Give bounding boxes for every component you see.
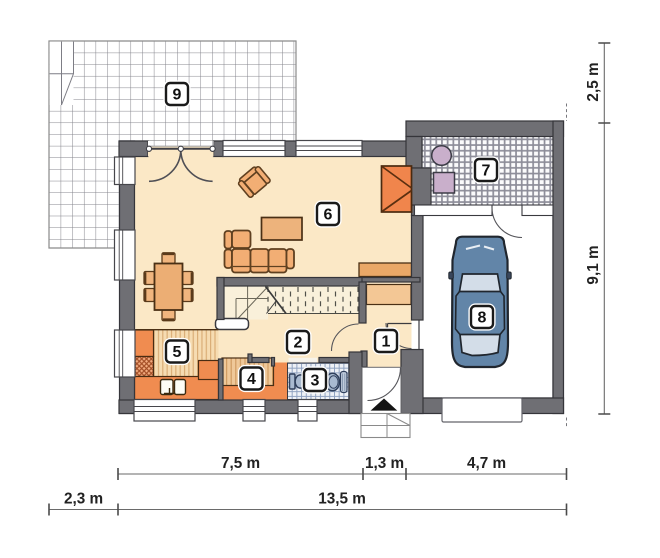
svg-text:5: 5	[173, 344, 182, 361]
svg-text:2,5 m: 2,5 m	[585, 62, 602, 101]
svg-text:3: 3	[311, 373, 320, 390]
svg-text:13,5 m: 13,5 m	[318, 491, 366, 508]
svg-text:7: 7	[482, 163, 491, 180]
svg-text:6: 6	[324, 207, 333, 224]
svg-text:1: 1	[382, 334, 391, 351]
svg-text:9: 9	[173, 87, 182, 104]
svg-text:1,3 m: 1,3 m	[365, 455, 404, 472]
svg-text:2,3 m: 2,3 m	[64, 491, 103, 508]
svg-text:4: 4	[247, 371, 256, 388]
svg-text:7,5 m: 7,5 m	[221, 455, 260, 472]
svg-text:4,7 m: 4,7 m	[467, 455, 506, 472]
svg-text:2: 2	[294, 335, 303, 352]
svg-text:8: 8	[478, 310, 487, 327]
svg-text:9,1 m: 9,1 m	[585, 245, 602, 284]
